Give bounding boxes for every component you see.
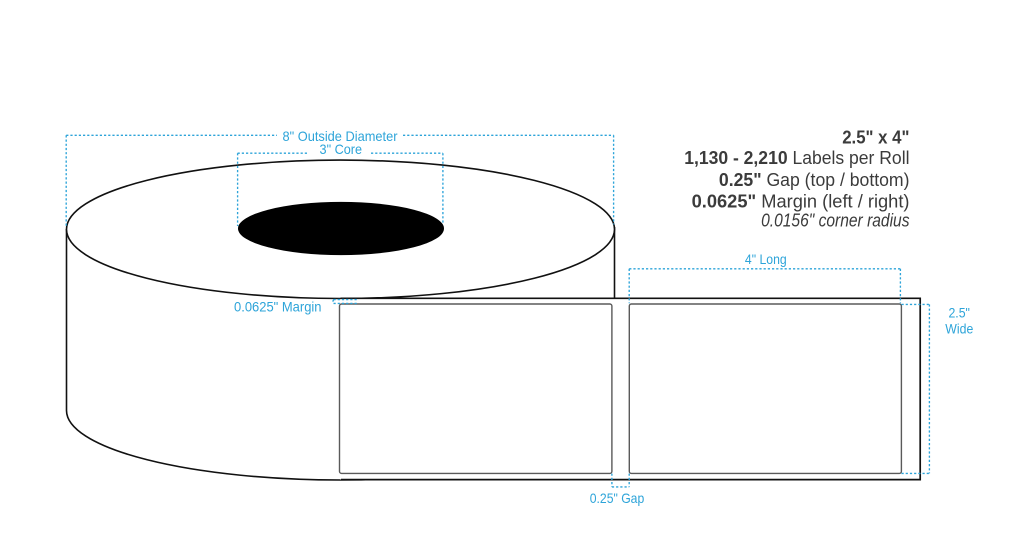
- svg-text:0.0625" Margin: 0.0625" Margin: [234, 299, 322, 315]
- svg-text:0.25" Gap (top / bottom): 0.25" Gap (top / bottom): [719, 169, 910, 190]
- svg-text:0.25" Gap: 0.25" Gap: [590, 490, 645, 506]
- svg-text:4" Long: 4" Long: [745, 251, 787, 267]
- svg-text:2.5" x 4": 2.5" x 4": [842, 127, 909, 148]
- svg-text:0.0625" Margin (left / right): 0.0625" Margin (left / right): [692, 190, 910, 211]
- svg-text:Wide: Wide: [945, 320, 973, 336]
- svg-text:1,130 - 2,210 Labels per Roll: 1,130 - 2,210 Labels per Roll: [684, 147, 909, 168]
- svg-text:0.0156" corner radius: 0.0156" corner radius: [761, 211, 909, 231]
- svg-text:2.5": 2.5": [948, 305, 970, 321]
- svg-text:3" Core: 3" Core: [320, 141, 363, 157]
